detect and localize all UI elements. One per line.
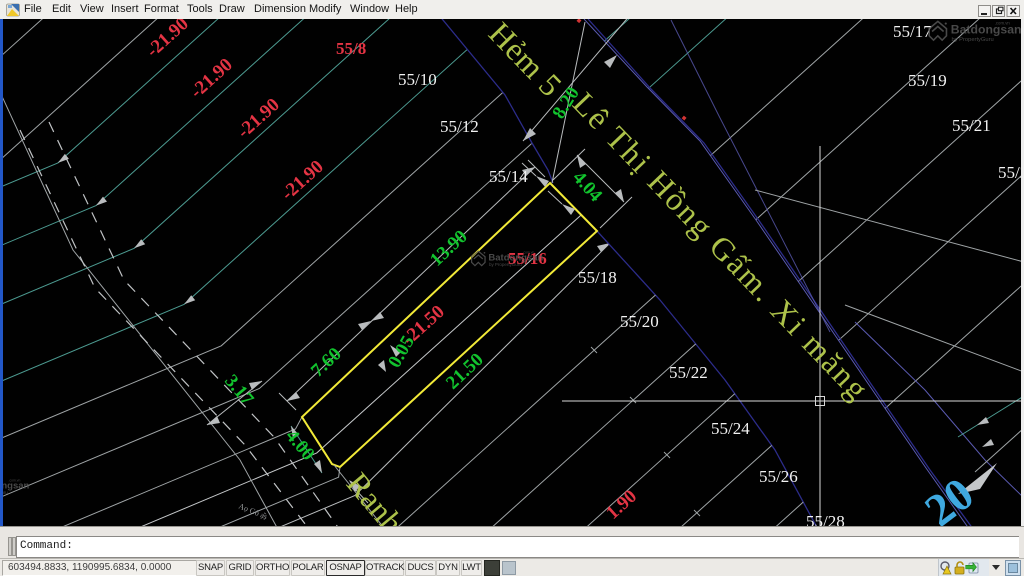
svg-text:Batdongsan: Batdongsan [951,23,1022,37]
svg-text:55/22: 55/22 [669,363,708,382]
svg-text:55/21: 55/21 [952,116,991,135]
svg-text:.com.vn: .com.vn [995,20,1011,25]
svg-text:55/12: 55/12 [440,117,479,136]
svg-text:.com.vn: .com.vn [9,478,21,482]
svg-text:55/24: 55/24 [711,419,750,438]
svg-text:by PropertyGuru: by PropertyGuru [952,37,994,43]
svg-text:55/26: 55/26 [759,467,798,486]
svg-text:.com.vn: .com.vn [523,250,535,254]
svg-text:by PropertyGuru: by PropertyGuru [489,262,522,267]
svg-text:55/14: 55/14 [489,167,528,186]
svg-text:55/17: 55/17 [893,22,932,41]
svg-text:55/18: 55/18 [578,268,617,287]
svg-text:55/10: 55/10 [398,70,437,89]
svg-text:55/19: 55/19 [908,71,947,90]
svg-text:55/2: 55/2 [998,163,1024,182]
svg-text:55/20: 55/20 [620,312,659,331]
svg-text:55/8: 55/8 [336,39,366,58]
